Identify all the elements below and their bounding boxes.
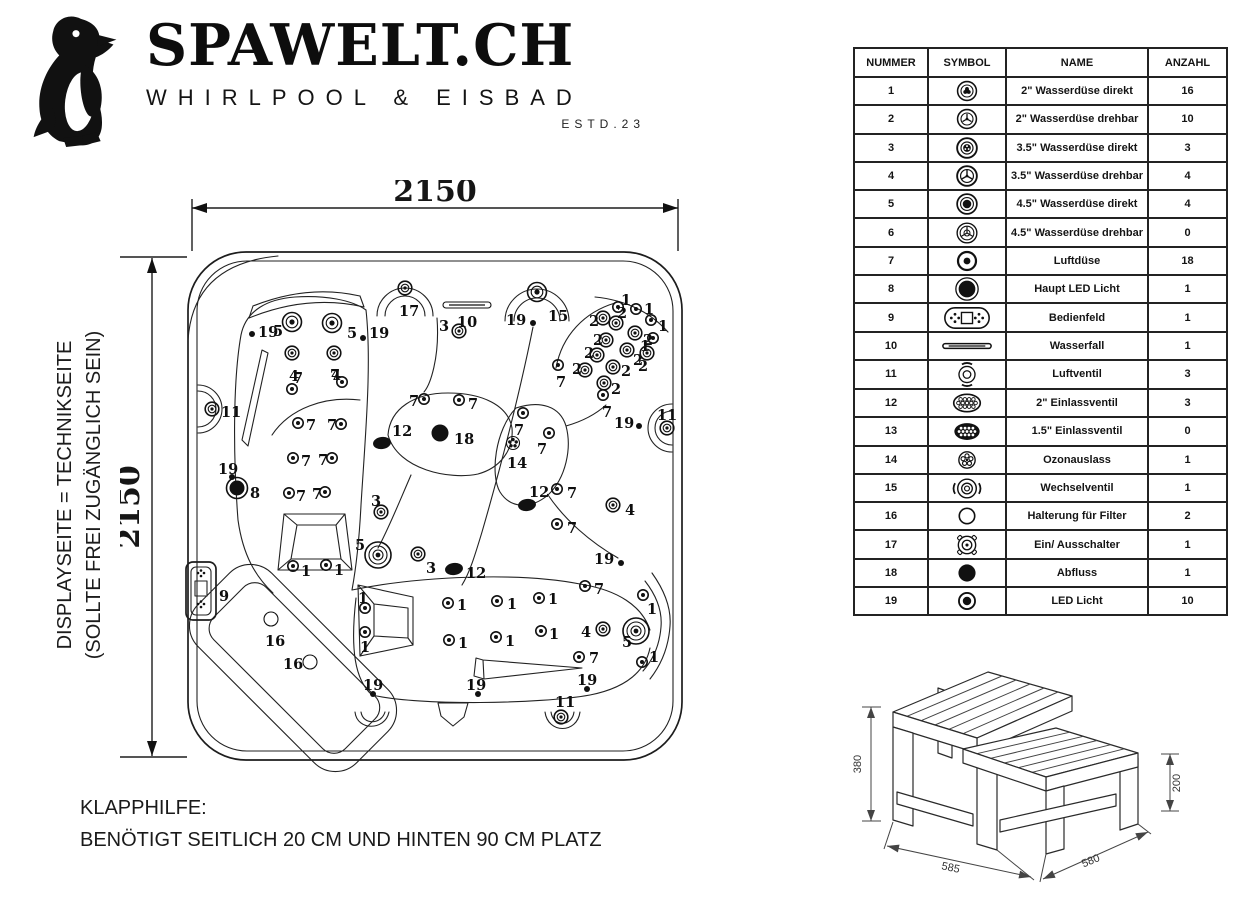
svg-text:10: 10 bbox=[457, 314, 477, 331]
part-symbol-icon bbox=[928, 389, 1006, 417]
part-symbol-icon bbox=[928, 332, 1006, 360]
svg-text:7: 7 bbox=[567, 520, 577, 537]
svg-text:7: 7 bbox=[330, 367, 340, 384]
svg-text:1: 1 bbox=[649, 649, 659, 666]
part-symbol-icon bbox=[928, 417, 1006, 445]
column-header-nummer: NUMMER bbox=[854, 48, 928, 77]
svg-text:2: 2 bbox=[638, 358, 648, 375]
part-quantity: 3 bbox=[1148, 389, 1227, 417]
part-number: 13 bbox=[854, 417, 928, 445]
part-number: 4 bbox=[854, 162, 928, 190]
table-row: 12" Wasserdüse direkt16 bbox=[854, 77, 1227, 105]
part-number: 16 bbox=[854, 502, 928, 530]
part-name: Haupt LED Licht bbox=[1006, 275, 1148, 303]
jet-marker-7: 7 bbox=[327, 417, 346, 434]
svg-text:1: 1 bbox=[360, 639, 370, 656]
svg-text:7: 7 bbox=[301, 453, 311, 470]
part-number: 11 bbox=[854, 360, 928, 389]
jet-marker-19: 19 bbox=[577, 672, 597, 692]
jet-marker-1: 1 bbox=[443, 597, 467, 614]
jet-marker-11: 11 bbox=[657, 407, 677, 435]
part-quantity: 1 bbox=[1148, 474, 1227, 502]
brand-title: SPAWELT.CH bbox=[146, 12, 651, 79]
jet-marker-16: 16 bbox=[264, 612, 285, 650]
side-note-line2: (SOLLTE FREI ZUGÄNGLICH SEIN) bbox=[80, 331, 109, 660]
jet-marker-7: 7 bbox=[514, 408, 528, 439]
jet-marker-7: 7 bbox=[318, 452, 337, 469]
part-name: Bedienfeld bbox=[1006, 303, 1148, 331]
svg-text:7: 7 bbox=[293, 370, 303, 387]
part-quantity: 10 bbox=[1148, 105, 1227, 133]
svg-text:7: 7 bbox=[409, 393, 419, 410]
jet-marker-7: 7 bbox=[454, 395, 478, 413]
table-row: 10Wasserfall1 bbox=[854, 332, 1227, 360]
jet-marker-16: 16 bbox=[283, 655, 317, 673]
svg-text:1: 1 bbox=[505, 633, 515, 650]
jet-marker-1: 1 bbox=[492, 596, 517, 613]
part-name: 2" Einlassventil bbox=[1006, 389, 1148, 417]
jet-marker-19: 19 bbox=[506, 312, 536, 329]
part-name: 4.5" Wasserdüse drehbar bbox=[1006, 218, 1148, 246]
column-header-symbol: SYMBOL bbox=[928, 48, 1006, 77]
svg-text:11: 11 bbox=[555, 694, 575, 711]
svg-text:2: 2 bbox=[584, 345, 594, 362]
svg-text:2: 2 bbox=[611, 381, 621, 398]
jet-marker-1: 1 bbox=[491, 632, 515, 650]
part-number: 6 bbox=[854, 218, 928, 246]
svg-text:7: 7 bbox=[312, 486, 322, 503]
svg-text:7: 7 bbox=[567, 485, 577, 502]
svg-text:11: 11 bbox=[221, 404, 241, 421]
jet-marker-3: 3 bbox=[371, 493, 388, 519]
jet-marker-19: 19 bbox=[360, 325, 389, 342]
table-row: 15Wechselventil1 bbox=[854, 474, 1227, 502]
svg-text:2: 2 bbox=[572, 361, 582, 378]
part-number: 17 bbox=[854, 530, 928, 558]
part-quantity: 0 bbox=[1148, 218, 1227, 246]
jet-marker-7: 7 bbox=[284, 488, 306, 505]
svg-text:11: 11 bbox=[657, 407, 677, 424]
footnote: KLAPPHILFE: BENÖTIGT SEITLICH 20 CM UND … bbox=[80, 792, 602, 856]
table-row: 54.5" Wasserdüse direkt4 bbox=[854, 190, 1227, 218]
svg-text:4: 4 bbox=[625, 502, 635, 519]
part-symbol-icon bbox=[928, 587, 1006, 615]
part-name: LED Licht bbox=[1006, 587, 1148, 615]
jet-marker-5: 5 bbox=[323, 314, 358, 343]
jet-marker-11: 11 bbox=[554, 694, 575, 724]
svg-text:580: 580 bbox=[1080, 852, 1102, 870]
part-quantity: 10 bbox=[1148, 587, 1227, 615]
part-symbol-icon bbox=[928, 247, 1006, 275]
svg-text:19: 19 bbox=[466, 677, 486, 694]
footnote-line1: KLAPPHILFE: bbox=[80, 792, 602, 824]
svg-text:5: 5 bbox=[347, 325, 357, 342]
svg-text:5: 5 bbox=[622, 634, 632, 651]
jet-marker-1: 1 bbox=[360, 627, 370, 656]
steps-dimension-step-height: 200 bbox=[1161, 754, 1183, 811]
part-name: Wechselventil bbox=[1006, 474, 1148, 502]
svg-text:7: 7 bbox=[556, 374, 566, 391]
side-note-line1: DISPLAYSEITE = TECHNIKSEITE bbox=[51, 331, 80, 660]
table-row: 122" Einlassventil3 bbox=[854, 389, 1227, 417]
svg-text:7: 7 bbox=[537, 441, 547, 458]
column-header-anzahl: ANZAHL bbox=[1148, 48, 1227, 77]
table-row: 14Ozonauslass1 bbox=[854, 446, 1227, 474]
part-symbol-icon bbox=[928, 134, 1006, 162]
jet-marker-1: 1 bbox=[534, 591, 558, 608]
part-symbol-icon bbox=[928, 502, 1006, 530]
part-quantity: 1 bbox=[1148, 559, 1227, 587]
jet-marker-18: 18 bbox=[432, 425, 475, 449]
part-name: Ozonauslass bbox=[1006, 446, 1148, 474]
column-header-name: NAME bbox=[1006, 48, 1148, 77]
part-symbol-icon bbox=[928, 190, 1006, 218]
table-row: 131.5" Einlassventil0 bbox=[854, 417, 1227, 445]
part-number: 1 bbox=[854, 77, 928, 105]
svg-text:2: 2 bbox=[589, 313, 599, 330]
jet-marker-2: 2 bbox=[572, 361, 592, 378]
part-quantity: 2 bbox=[1148, 502, 1227, 530]
part-quantity: 4 bbox=[1148, 190, 1227, 218]
side-note: DISPLAYSEITE = TECHNIKSEITE (SOLLTE FREI… bbox=[51, 331, 109, 660]
svg-text:1: 1 bbox=[658, 318, 668, 335]
part-number: 15 bbox=[854, 474, 928, 502]
jet-marker-7: 7 bbox=[598, 390, 612, 421]
part-name: 4.5" Wasserdüse direkt bbox=[1006, 190, 1148, 218]
part-number: 18 bbox=[854, 559, 928, 587]
part-name: 3.5" Wasserdüse direkt bbox=[1006, 134, 1148, 162]
svg-text:16: 16 bbox=[265, 633, 285, 650]
part-quantity: 18 bbox=[1148, 247, 1227, 275]
part-number: 9 bbox=[854, 303, 928, 331]
svg-text:19: 19 bbox=[506, 312, 526, 329]
part-number: 12 bbox=[854, 389, 928, 417]
parts-table: NUMMER SYMBOL NAME ANZAHL 12" Wasserdüse… bbox=[853, 47, 1228, 616]
svg-text:1: 1 bbox=[334, 562, 344, 579]
tub-diagram: 2150 2150 bbox=[120, 180, 720, 805]
jet-marker-12: 12 bbox=[372, 423, 412, 450]
table-row: 22" Wasserdüse drehbar10 bbox=[854, 105, 1227, 133]
part-quantity: 1 bbox=[1148, 446, 1227, 474]
jet-marker-5: 5 bbox=[622, 618, 649, 651]
part-quantity: 1 bbox=[1148, 332, 1227, 360]
part-quantity: 3 bbox=[1148, 134, 1227, 162]
svg-text:15: 15 bbox=[548, 308, 568, 325]
svg-text:19: 19 bbox=[577, 672, 597, 689]
part-name: Luftdüse bbox=[1006, 247, 1148, 275]
svg-text:2: 2 bbox=[617, 305, 627, 322]
jet-marker-7: 7 bbox=[537, 428, 554, 458]
part-symbol-icon bbox=[928, 162, 1006, 190]
svg-text:3: 3 bbox=[439, 318, 449, 335]
part-quantity: 0 bbox=[1148, 417, 1227, 445]
part-quantity: 1 bbox=[1148, 530, 1227, 558]
svg-text:7: 7 bbox=[602, 404, 612, 421]
svg-text:16: 16 bbox=[283, 656, 303, 673]
dimension-height-label: 2150 bbox=[120, 465, 147, 549]
part-symbol-icon bbox=[928, 474, 1006, 502]
jet-marker-7: 7 bbox=[288, 453, 311, 470]
svg-text:7: 7 bbox=[589, 650, 599, 667]
part-symbol-icon bbox=[928, 446, 1006, 474]
table-row: 9Bedienfeld1 bbox=[854, 303, 1227, 331]
jet-marker-1: 1 bbox=[321, 560, 344, 579]
jet-marker-7: 7 bbox=[553, 360, 566, 391]
part-number: 2 bbox=[854, 105, 928, 133]
jet-marker-5: 5 bbox=[273, 313, 302, 341]
brand-logo: SPAWELT.CH WHIRLPOOL & EISBAD ESTD.23 bbox=[16, 6, 656, 146]
part-name: 2" Wasserdüse drehbar bbox=[1006, 105, 1148, 133]
table-row: 7Luftdüse18 bbox=[854, 247, 1227, 275]
svg-text:19: 19 bbox=[614, 415, 634, 432]
svg-text:200: 200 bbox=[1171, 774, 1183, 792]
dimension-height: 2150 bbox=[120, 257, 187, 757]
footnote-line2: BENÖTIGT SEITLICH 20 CM UND HINTEN 90 CM… bbox=[80, 824, 602, 856]
svg-text:14: 14 bbox=[507, 455, 527, 472]
jet-marker-5: 5 bbox=[355, 537, 391, 568]
svg-text:585: 585 bbox=[940, 860, 960, 876]
brand-estd: ESTD.23 bbox=[146, 117, 651, 131]
svg-text:1: 1 bbox=[507, 596, 517, 613]
part-name: Ein/ Ausschalter bbox=[1006, 530, 1148, 558]
jet-marker-9: 9 bbox=[219, 588, 229, 605]
jet-marker-19: 19 bbox=[594, 551, 624, 568]
jet-marker-12: 12 bbox=[517, 484, 549, 512]
part-name: Wasserfall bbox=[1006, 332, 1148, 360]
jet-marker-19: 19 bbox=[363, 677, 383, 697]
jet-marker-2: 2 bbox=[589, 311, 610, 330]
svg-text:19: 19 bbox=[363, 677, 383, 694]
jet-marker-12: 12 bbox=[444, 562, 486, 582]
jet-marker-2: 2 bbox=[609, 305, 627, 330]
part-number: 8 bbox=[854, 275, 928, 303]
part-symbol-icon bbox=[928, 303, 1006, 331]
jet-marker-14: 14 bbox=[507, 437, 528, 473]
svg-text:7: 7 bbox=[306, 417, 316, 434]
table-row: 64.5" Wasserdüse drehbar0 bbox=[854, 218, 1227, 246]
svg-text:7: 7 bbox=[318, 452, 328, 469]
svg-text:380: 380 bbox=[852, 755, 864, 773]
part-symbol-icon bbox=[928, 360, 1006, 389]
table-row: 43.5" Wasserdüse drehbar4 bbox=[854, 162, 1227, 190]
table-row: 18Abfluss1 bbox=[854, 559, 1227, 587]
svg-text:7: 7 bbox=[296, 488, 306, 505]
part-name: Luftventil bbox=[1006, 360, 1148, 389]
jet-marker-7: 7 bbox=[312, 486, 330, 503]
svg-text:8: 8 bbox=[250, 485, 260, 502]
jet-marker-11: 11 bbox=[205, 402, 241, 421]
jet-marker-1: 1 bbox=[358, 590, 370, 613]
part-symbol-icon bbox=[928, 559, 1006, 587]
table-row: 19LED Licht10 bbox=[854, 587, 1227, 615]
jet-marker-8: 8 bbox=[227, 478, 261, 503]
part-number: 14 bbox=[854, 446, 928, 474]
svg-text:7: 7 bbox=[468, 396, 478, 413]
svg-text:7: 7 bbox=[594, 581, 604, 598]
steps-dimension-depth-left: 585 bbox=[884, 822, 1034, 880]
svg-text:2: 2 bbox=[593, 332, 603, 349]
part-quantity: 1 bbox=[1148, 275, 1227, 303]
jet-marker-19: 19 bbox=[614, 415, 642, 432]
table-row: 33.5" Wasserdüse direkt3 bbox=[854, 134, 1227, 162]
part-number: 10 bbox=[854, 332, 928, 360]
steps-diagram: 380 200 585 580 bbox=[850, 648, 1243, 899]
jet-marker-7: 7 bbox=[580, 581, 604, 598]
table-row: 16Halterung für Filter2 bbox=[854, 502, 1227, 530]
part-symbol-icon bbox=[928, 275, 1006, 303]
jet-marker-4: 4 bbox=[581, 622, 610, 641]
jet-marker-1: 1 bbox=[444, 635, 468, 652]
jet-marker-7: 7 bbox=[330, 367, 347, 387]
jet-marker-3: 3 bbox=[411, 547, 436, 577]
table-row: 8Haupt LED Licht1 bbox=[854, 275, 1227, 303]
steps-dimension-total-height: 380 bbox=[852, 707, 881, 821]
control-panel-marker bbox=[186, 562, 216, 620]
table-row: 11Luftventil3 bbox=[854, 360, 1227, 389]
svg-text:1: 1 bbox=[647, 601, 657, 618]
jet-marker-7: 7 bbox=[552, 519, 577, 537]
jet-marker-19: 19 bbox=[466, 677, 486, 697]
part-number: 19 bbox=[854, 587, 928, 615]
part-quantity: 4 bbox=[1148, 162, 1227, 190]
part-name: 3.5" Wasserdüse drehbar bbox=[1006, 162, 1148, 190]
svg-text:4: 4 bbox=[581, 624, 591, 641]
jet-marker-7: 7 bbox=[293, 417, 316, 434]
svg-text:1: 1 bbox=[458, 635, 468, 652]
part-quantity: 1 bbox=[1148, 303, 1227, 331]
svg-text:7: 7 bbox=[327, 417, 337, 434]
jet-marker-2: 2 bbox=[593, 332, 613, 349]
jet-marker-2: 2 bbox=[597, 376, 621, 398]
part-symbol-icon bbox=[928, 530, 1006, 558]
part-number: 3 bbox=[854, 134, 928, 162]
part-symbol-icon bbox=[928, 77, 1006, 105]
part-name: 2" Wasserdüse direkt bbox=[1006, 77, 1148, 105]
jet-marker-4: 4 bbox=[606, 498, 635, 519]
svg-text:19: 19 bbox=[369, 325, 389, 342]
part-number: 7 bbox=[854, 247, 928, 275]
svg-text:5: 5 bbox=[355, 537, 365, 554]
brand-tagline: WHIRLPOOL & EISBAD bbox=[146, 85, 651, 111]
svg-text:1: 1 bbox=[358, 590, 368, 607]
svg-text:3: 3 bbox=[426, 560, 436, 577]
svg-text:12: 12 bbox=[466, 565, 486, 582]
svg-text:18: 18 bbox=[454, 431, 474, 448]
part-quantity: 3 bbox=[1148, 360, 1227, 389]
svg-text:5: 5 bbox=[273, 323, 283, 340]
table-header-row: NUMMER SYMBOL NAME ANZAHL bbox=[854, 48, 1227, 77]
svg-text:9: 9 bbox=[219, 588, 229, 605]
svg-text:2: 2 bbox=[621, 363, 631, 380]
document-page: SPAWELT.CH WHIRLPOOL & EISBAD ESTD.23 DI… bbox=[0, 0, 1243, 899]
part-number: 5 bbox=[854, 190, 928, 218]
svg-text:1: 1 bbox=[457, 597, 467, 614]
penguin-logo-icon bbox=[20, 10, 132, 148]
svg-text:17: 17 bbox=[399, 303, 419, 320]
svg-text:12: 12 bbox=[392, 423, 412, 440]
part-name: 1.5" Einlassventil bbox=[1006, 417, 1148, 445]
svg-text:12: 12 bbox=[529, 484, 549, 501]
dimension-width: 2150 bbox=[192, 180, 678, 251]
svg-text:1: 1 bbox=[549, 626, 559, 643]
jet-marker-7: 7 bbox=[574, 650, 599, 667]
svg-text:1: 1 bbox=[301, 563, 311, 580]
svg-text:19: 19 bbox=[594, 551, 614, 568]
part-name: Halterung für Filter bbox=[1006, 502, 1148, 530]
svg-text:19: 19 bbox=[218, 461, 238, 478]
svg-text:1: 1 bbox=[548, 591, 558, 608]
jet-marker-17: 17 bbox=[398, 281, 419, 320]
table-row: 17Ein/ Ausschalter1 bbox=[854, 530, 1227, 558]
jet-marker-1: 1 bbox=[536, 626, 559, 643]
jet-marker-2: 2 bbox=[606, 360, 631, 380]
svg-text:3: 3 bbox=[371, 493, 381, 510]
jet-marker-10: 10 bbox=[443, 302, 491, 331]
part-name: Abfluss bbox=[1006, 559, 1148, 587]
dimension-width-label: 2150 bbox=[393, 180, 477, 209]
part-symbol-icon bbox=[928, 218, 1006, 246]
part-quantity: 16 bbox=[1148, 77, 1227, 105]
part-symbol-icon bbox=[928, 105, 1006, 133]
